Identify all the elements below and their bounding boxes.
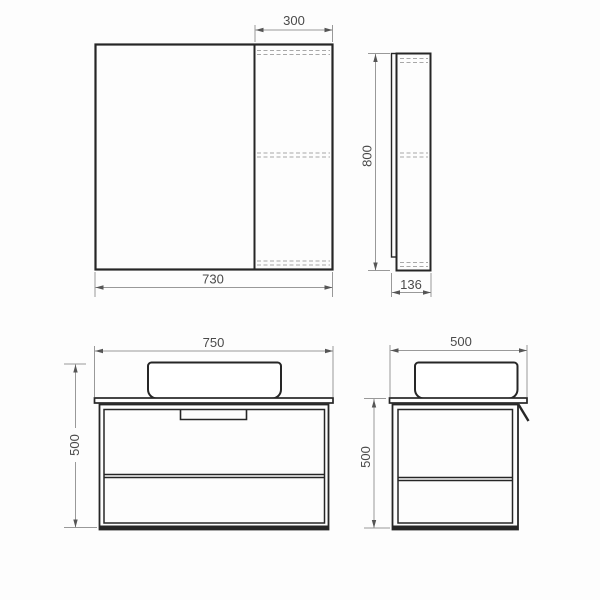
vanity-side-view: 500 500 — [358, 334, 529, 530]
dim-label-vanity-width: 750 — [203, 335, 225, 350]
mirror-cabinet-front-view: 300 730 — [95, 13, 333, 297]
arrowhead — [372, 520, 376, 528]
dimension-vanity-front-height: 500 — [64, 364, 97, 528]
dim-label-vanity-front-height: 500 — [67, 434, 82, 456]
arrowhead — [96, 285, 104, 289]
arrowhead — [256, 28, 264, 32]
arrowhead — [95, 349, 103, 353]
countertop-front — [95, 398, 334, 403]
vanity-frame-inner-side — [398, 410, 513, 524]
dim-label-mirror-height: 800 — [360, 145, 375, 167]
dim-label-mirror-depth: 136 — [400, 277, 422, 292]
drawer-handle-recess — [181, 410, 247, 420]
arrowhead — [373, 263, 377, 271]
vessel-sink-side — [415, 363, 518, 399]
arrowhead — [73, 365, 77, 373]
arrowhead — [391, 348, 399, 352]
arrowhead — [325, 285, 333, 289]
dimension-mirror-depth: 136 — [392, 273, 432, 297]
drawing-canvas: 300 730 800 — [0, 0, 600, 600]
arrowhead — [325, 28, 333, 32]
dim-label-vanity-side-height: 500 — [358, 446, 373, 468]
vanity-frame-outer-side — [393, 405, 519, 530]
arrowhead — [519, 348, 527, 352]
arrowhead — [423, 290, 431, 294]
vessel-sink-front — [148, 363, 281, 399]
dim-label-vanity-depth: 500 — [450, 334, 472, 349]
arrowhead — [392, 290, 400, 294]
dimension-mirror-height: 800 — [360, 54, 391, 271]
dim-label-mirror-total-width: 730 — [202, 272, 224, 287]
dim-label-mirror-door-width: 300 — [283, 13, 305, 28]
vanity-front-view: 750 500 — [64, 335, 333, 530]
countertop-side — [390, 398, 528, 403]
dimension-vanity-side-height: 500 — [358, 399, 390, 529]
vanity-frame-outer — [100, 405, 329, 530]
dimension-mirror-total-width: 730 — [95, 272, 333, 298]
arrowhead — [372, 400, 376, 408]
dimension-mirror-door-width: 300 — [255, 13, 333, 42]
mirror-cabinet-carcass — [397, 54, 431, 271]
vanity-frame-inner — [104, 410, 325, 524]
vanity-frame-bottom-rail-side — [393, 526, 518, 531]
arrowhead — [73, 520, 77, 528]
arrowhead — [325, 349, 333, 353]
mirror-cabinet-side-view: 800 136 — [360, 54, 432, 298]
mounting-bracket-mark — [519, 405, 529, 422]
vanity-frame-bottom-rail — [100, 526, 328, 531]
technical-drawing: 300 730 800 — [0, 0, 600, 600]
arrowhead — [373, 54, 377, 62]
